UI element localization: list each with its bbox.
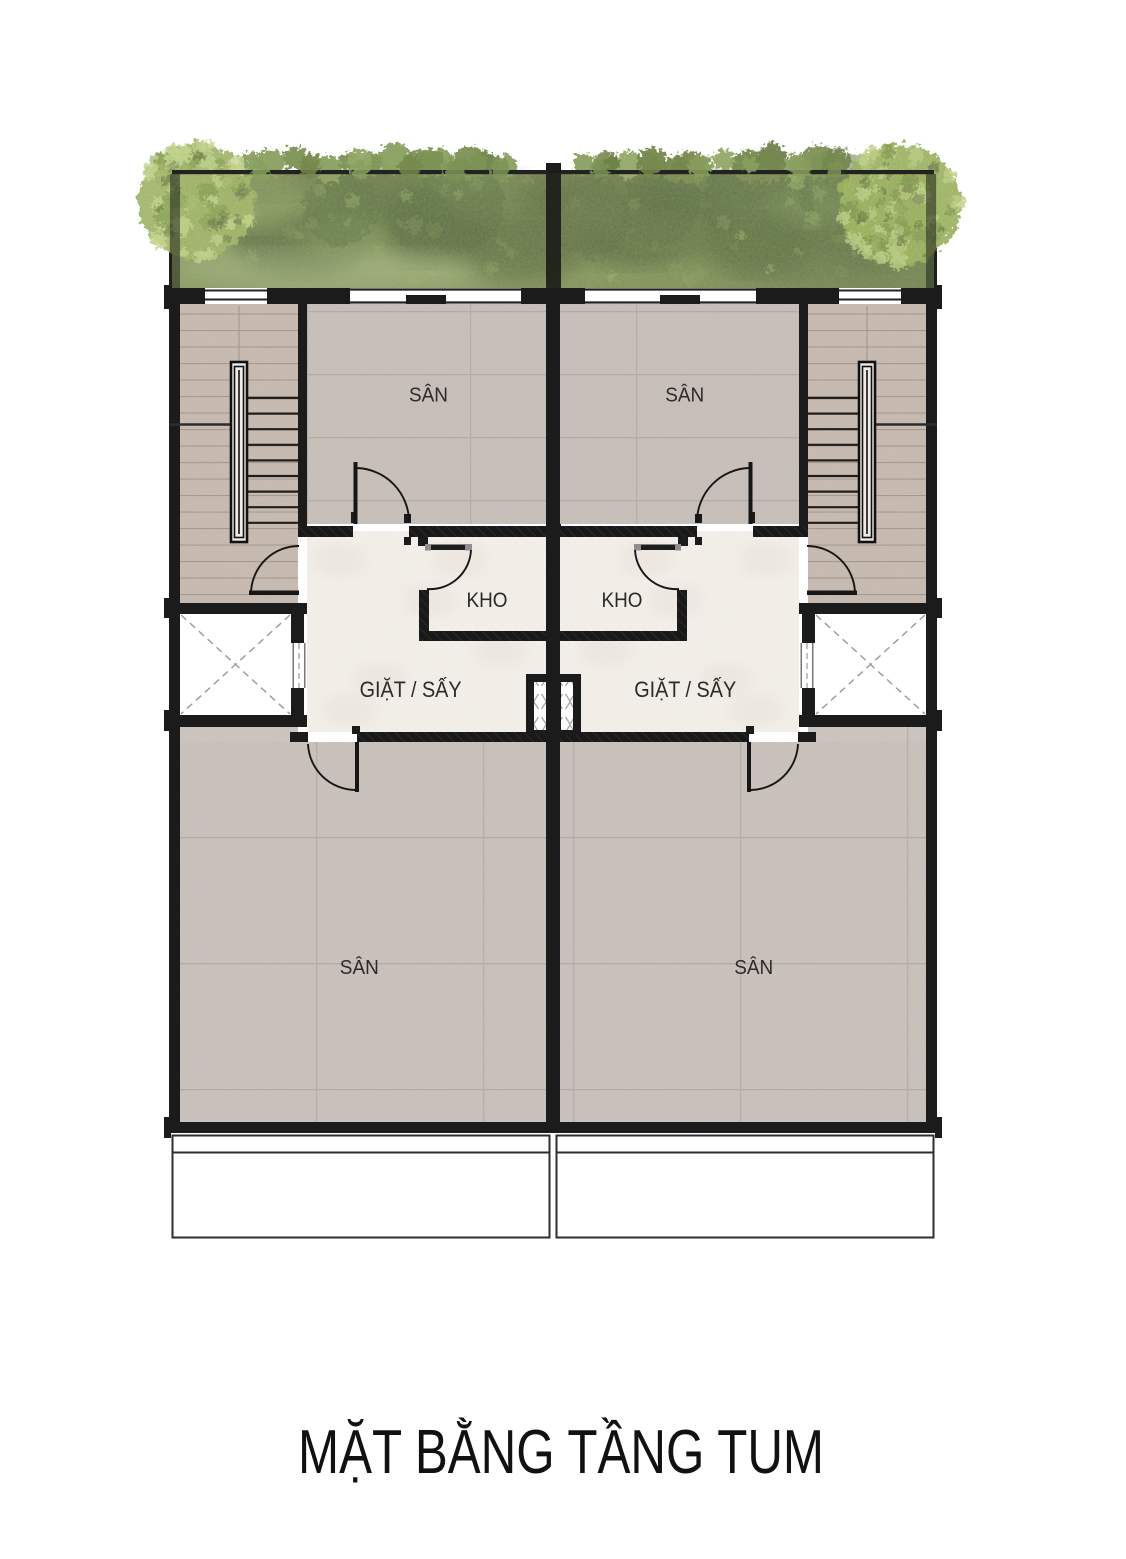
svg-text:KHO: KHO (602, 588, 643, 612)
svg-text:SÂN: SÂN (409, 384, 448, 407)
svg-text:SÂN: SÂN (665, 384, 704, 407)
svg-text:KHO: KHO (467, 588, 508, 612)
svg-text:SÂN: SÂN (340, 956, 379, 979)
svg-text:GIẶT / SẤY: GIẶT / SẤY (360, 677, 462, 702)
svg-text:SÂN: SÂN (734, 956, 773, 979)
svg-text:GIẶT / SẤY: GIẶT / SẤY (634, 677, 736, 702)
svg-text:MẶT BẰNG TẦNG TUM: MẶT BẰNG TẦNG TUM (298, 1418, 824, 1487)
